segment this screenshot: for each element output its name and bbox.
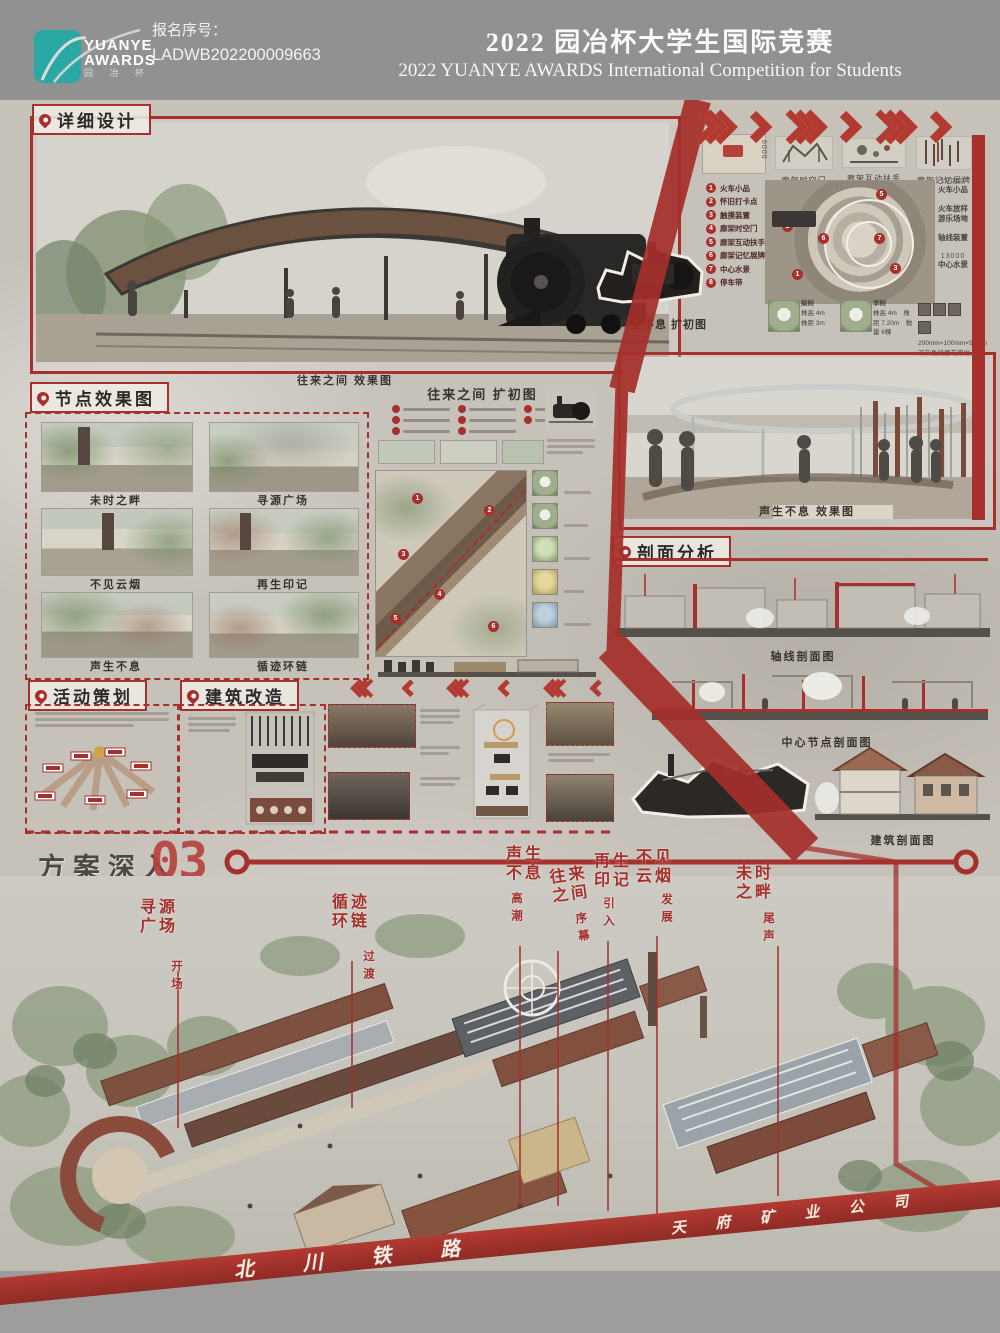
- aerial-label-zaisheng: 再生印记: [594, 852, 632, 890]
- node-caption: 不见云烟: [41, 576, 191, 592]
- poster-title-en: 2022 YUANYE AWARDS International Competi…: [300, 60, 1000, 82]
- map-pin-icon: [37, 111, 54, 128]
- node-caption: 循迹环链: [209, 658, 357, 674]
- plant-spec-text: 株高 4m 株距 7.20m 数量 6棵: [873, 309, 915, 338]
- minimap-highlight: [723, 145, 743, 157]
- plant-photo: [840, 300, 872, 332]
- expansion-plan-legend: 1火车小品 2怀旧打卡点 3触摸装置 4廊架时空门 5廊架互动扶手 6廊架记忆展…: [706, 180, 772, 291]
- mini-legend-item: [392, 416, 450, 424]
- train-station-rendering: [36, 122, 669, 362]
- machinery-axon-diagram: [242, 710, 318, 828]
- plant-name: 梨树: [801, 300, 814, 307]
- side-label: 火车放样 游乐场地: [936, 204, 970, 223]
- keyplan-minimap: [702, 134, 766, 174]
- paving-swatch: [918, 321, 931, 334]
- shengsheng-rendering: [623, 357, 985, 519]
- chimney-shape: [102, 513, 114, 550]
- wanglai-site-plan: 1 2 3 4 5 6: [375, 470, 527, 657]
- legend-item: 3触摸装置: [706, 210, 772, 221]
- plan-side-items: 10000 火车小品 火车放样 游乐场地 轴线装置 13000 中心水景: [936, 178, 970, 269]
- legend-text: 停车带: [720, 277, 743, 288]
- detail-photo: [440, 440, 497, 464]
- mini-legend-item: [392, 427, 450, 435]
- plan-dot: 5: [876, 189, 887, 200]
- map-pin-icon: [33, 687, 50, 704]
- node-rendering-shengsheng-buxi: [41, 592, 193, 658]
- rail-section-strip: [378, 656, 596, 680]
- diagram-handrail: 廊架互动扶手: [842, 138, 906, 184]
- locomotive-cutout: [592, 230, 708, 310]
- plant-photo: [532, 602, 558, 628]
- side-dim: 13000: [936, 253, 970, 260]
- competition-poster: YUANYE AWARDS 园 冶 杯 报名序号： LADWB202200009…: [0, 0, 1000, 1333]
- aerial-phase-guodu: 过渡: [360, 950, 376, 985]
- plan-dot: 2: [484, 505, 495, 516]
- legend-text: 中心水景: [720, 264, 750, 275]
- map-pin-icon: [35, 389, 52, 406]
- node-caption: 再生印记: [209, 576, 357, 592]
- plant-photo: [532, 503, 558, 529]
- plaza-inner-ring: [846, 221, 892, 267]
- plant-name: 李树: [873, 300, 886, 307]
- wanglai-spec-lines: [545, 436, 597, 457]
- node-caption: 寻源广场: [209, 492, 357, 508]
- plant-spec-text: 株高 4m 株距 3m: [801, 309, 837, 329]
- activity-text-lines: [33, 712, 171, 727]
- side-dim: 10000: [936, 178, 970, 185]
- node-caption: 未时之畔: [41, 492, 191, 508]
- detail-design-frame: [30, 116, 681, 374]
- wanglai-plant-column: [532, 470, 596, 629]
- legend-text: 触摸装置: [720, 210, 750, 221]
- wanglai-legend-col1: [392, 402, 450, 438]
- legend-text: 廊架记忆展牌: [720, 250, 765, 261]
- paving-swatch: [948, 303, 961, 316]
- plan-dot: 3: [398, 549, 409, 560]
- aerial-label-xunyuan: 寻源广场: [140, 898, 178, 936]
- diagram-memory-dim: 4000: [976, 140, 983, 160]
- building-section-drawing: [815, 740, 990, 826]
- logo-line2: AWARDS: [84, 53, 156, 68]
- legend-text: 廊架时空门: [720, 223, 758, 234]
- aerial-phase-weisheng: 尾声: [760, 912, 776, 947]
- section-label-text: 详细设计: [57, 107, 137, 132]
- legend-text: 怀旧打卡点: [720, 196, 758, 207]
- yuanye-logo: [34, 30, 81, 83]
- plan-dot: 3: [890, 263, 901, 274]
- aerial-phase-kaichang: 开场: [168, 960, 184, 995]
- aerial-phase-gaochao: 高潮: [508, 892, 524, 927]
- legend-num: 3: [706, 210, 716, 220]
- node-rendering-bujianyunyan: [41, 508, 193, 576]
- renovation-box: [178, 704, 326, 834]
- renovation-photo: [546, 774, 614, 822]
- logo-wordmark: YUANYE AWARDS 园 冶 杯: [84, 38, 156, 78]
- legend-text: 火车小品: [720, 183, 750, 194]
- section-label-section-analysis: 剖面分析: [612, 536, 731, 567]
- registration-label: 报名序号：: [152, 20, 321, 43]
- expansion-plan-caption: 声生不息 扩初图: [598, 316, 728, 332]
- section-label-detail-design: 详细设计: [32, 104, 151, 135]
- logo-line1: YUANYE: [84, 38, 156, 53]
- wanglai-legend-col2: [458, 402, 516, 438]
- activity-fan-diagram: [27, 730, 173, 818]
- node-rendering-weishizhipan: [41, 422, 193, 492]
- header-bar: YUANYE AWARDS 园 冶 杯 报名序号： LADWB202200009…: [0, 0, 1000, 100]
- legend-item: 2怀旧打卡点: [706, 196, 772, 207]
- aerial-label-weishi: 未时之畔: [736, 864, 774, 902]
- plan-dot: 7: [874, 233, 885, 244]
- legend-num: 1: [706, 183, 716, 193]
- logo-cn: 园 冶 杯: [84, 69, 156, 78]
- plant-spec: 梨树 株高 4m 株距 3m: [801, 299, 837, 328]
- legend-item: 7中心水景: [706, 264, 772, 275]
- legend-item: 6廊架记忆展牌: [706, 250, 772, 261]
- diagram-gate: 廊架时空门: [775, 136, 833, 186]
- node-rendering-xunyuan-plaza: [209, 422, 359, 492]
- aerial-phase-yinru: 引入: [600, 897, 616, 932]
- plan-dot: 6: [818, 233, 829, 244]
- side-label: 火车小品: [936, 185, 970, 194]
- side-label: 中心水景: [936, 260, 970, 269]
- plan-dot: 1: [412, 493, 423, 504]
- mini-legend-item: [458, 427, 516, 435]
- renovation-photo: [328, 704, 416, 748]
- plant-spec: 李树 株高 4m 株距 7.20m 数量 6棵: [873, 299, 915, 338]
- display-case-axon-diagram: [466, 702, 538, 828]
- factory-cutout-photo: [628, 744, 813, 822]
- building-section-caption: 建筑剖面图: [838, 832, 968, 848]
- node-rendering-zaisheng-yinji: [209, 508, 359, 576]
- plan-dot: 5: [390, 613, 401, 624]
- side-label: 轴线装置: [936, 233, 970, 242]
- mini-legend-item: [392, 405, 450, 413]
- center-node-section-drawing: [652, 662, 988, 726]
- section-label-node-effects: 节点效果图: [30, 382, 169, 413]
- plan-train-strip: [772, 211, 816, 227]
- legend-item: 4廊架时空门: [706, 223, 772, 234]
- axis-section-drawing: [615, 566, 990, 644]
- map-pin-icon: [617, 543, 634, 560]
- legend-item: 8停车带: [706, 277, 772, 288]
- mini-legend-item: [458, 416, 516, 424]
- mini-legend-item: [458, 405, 516, 413]
- detail-photo: [502, 440, 544, 464]
- section-label-text: 节点效果图: [55, 385, 155, 410]
- plan-dot: 4: [434, 589, 445, 600]
- shengsheng-render-frame: 声生不息 效果图: [618, 352, 996, 530]
- detail-photo: [378, 440, 435, 464]
- aerial-label-shengsheng: 声生不息: [506, 845, 544, 883]
- node-caption: 声生不息: [41, 658, 191, 674]
- legend-text: 廊架互动扶手: [720, 237, 765, 248]
- paving-swatch: [933, 303, 946, 316]
- renovation-notes: [546, 750, 612, 765]
- node-effects-box: 未时之畔 寻源广场 不见云烟 再生印记 声生不息 循迹环链: [25, 412, 369, 680]
- chimney-shape: [240, 513, 252, 550]
- section-label-text: 剖面分析: [637, 539, 717, 564]
- chimney-shape: [78, 427, 90, 465]
- plant-photo: [532, 569, 558, 595]
- renovation-notes: [418, 706, 462, 789]
- renovation-photo: [328, 772, 410, 820]
- renovation-photo: [546, 702, 614, 746]
- plant-photo: [768, 300, 800, 332]
- diagram-gate-dim: 6000: [760, 140, 767, 160]
- paving-swatch: [918, 303, 931, 316]
- aerial-label-wanglai: 往来之间: [549, 864, 592, 907]
- registration-number: LADWB202200009663: [152, 46, 321, 64]
- renovation-text-lines: [186, 714, 238, 735]
- legend-item: 1火车小品: [706, 183, 772, 194]
- legend-num: 2: [706, 197, 716, 207]
- small-locomotive-photo: [545, 390, 597, 430]
- expansion-plan-drawing: 5 6 7 3 2 1: [765, 180, 935, 304]
- legend-item: 5廊架互动扶手: [706, 237, 772, 248]
- railway-dashed-line: [375, 470, 527, 657]
- registration-block: 报名序号： LADWB202200009663: [152, 20, 321, 67]
- plan-dot: 1: [792, 269, 803, 280]
- poster-title-cn: 2022 园冶杯大学生国际竞赛: [330, 22, 990, 59]
- node-rendering-xunji-huanlian: [209, 592, 359, 658]
- plant-photo: [532, 536, 558, 562]
- aerial-phase-fazhan: 发展: [658, 893, 674, 928]
- plant-photo: [532, 470, 558, 496]
- shengsheng-render-caption: 声生不息 效果图: [707, 503, 907, 519]
- aerial-label-bujian: 不见云烟: [636, 848, 674, 886]
- plan-dot: 6: [488, 621, 499, 632]
- activity-box: [25, 704, 179, 834]
- wanglai-plan-title: 往来之间 扩初图: [395, 384, 570, 403]
- aerial-label-xunji: 循迹环链: [332, 893, 370, 931]
- map-pin-icon: [185, 687, 202, 704]
